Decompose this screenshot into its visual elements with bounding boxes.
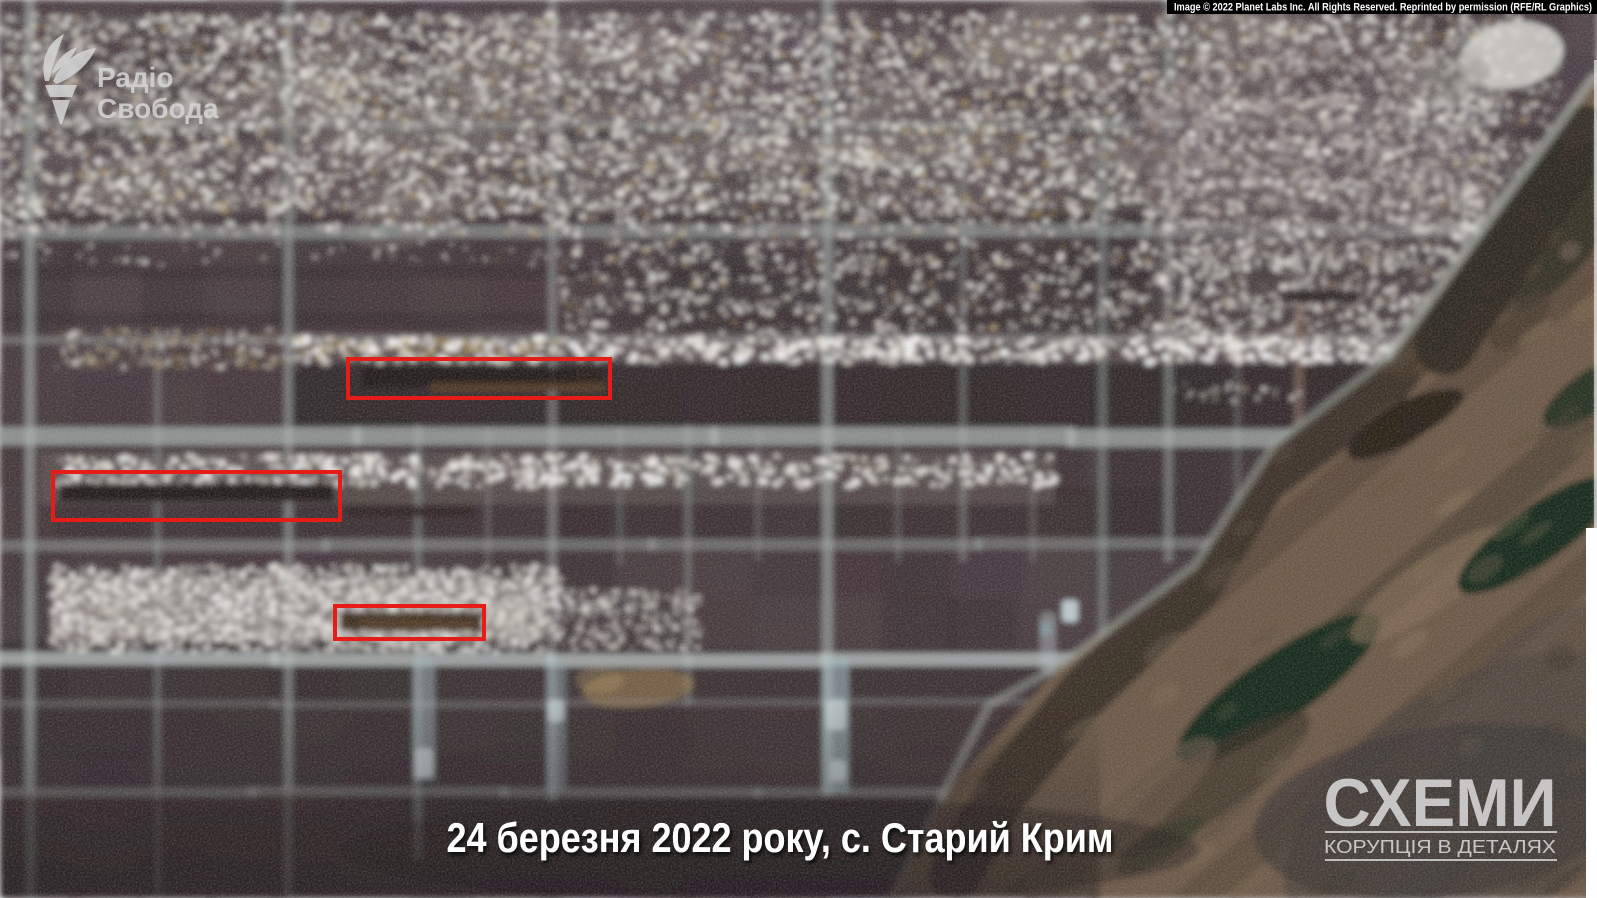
svg-text:Свобода: Свобода [97, 93, 219, 124]
svg-text:СХЕМИ: СХЕМИ [1324, 765, 1557, 841]
svg-text:КОРУПЦІЯ В ДЕТАЛЯХ: КОРУПЦІЯ В ДЕТАЛЯХ [1324, 837, 1556, 857]
svg-text:Image © 2022 Planet Labs Inc.: Image © 2022 Planet Labs Inc. All Rights… [1174, 2, 1592, 14]
svg-text:24 березня 2022 року, с. Стари: 24 березня 2022 року, с. Старий Крим [447, 814, 1114, 861]
svg-text:Радіо: Радіо [97, 62, 174, 93]
